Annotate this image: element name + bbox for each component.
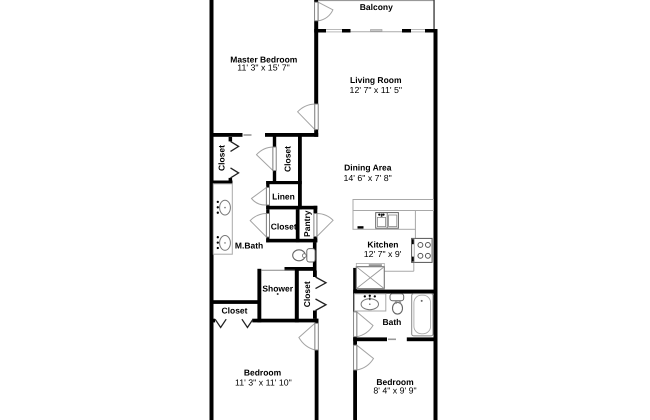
svg-text:12' 7" x 9': 12' 7" x 9' bbox=[364, 249, 402, 259]
svg-text:Closet: Closet bbox=[302, 281, 312, 307]
svg-text:Living Room: Living Room bbox=[350, 75, 402, 85]
svg-text:Closet: Closet bbox=[271, 222, 297, 232]
svg-text:12' 7" x 11' 5": 12' 7" x 11' 5" bbox=[350, 85, 402, 95]
svg-text:Shower: Shower bbox=[262, 283, 293, 293]
svg-text:M.Bath: M.Bath bbox=[235, 241, 263, 251]
svg-text:Bedroom: Bedroom bbox=[244, 368, 282, 378]
svg-text:Kitchen: Kitchen bbox=[367, 240, 398, 250]
svg-text:Balcony: Balcony bbox=[360, 2, 393, 12]
svg-text:8' 4" x 9' 9": 8' 4" x 9' 9" bbox=[373, 386, 416, 396]
svg-text:11' 3" x 15' 7": 11' 3" x 15' 7" bbox=[237, 63, 289, 73]
svg-text:Linen: Linen bbox=[272, 192, 295, 202]
svg-text:Dining Area: Dining Area bbox=[344, 163, 392, 173]
svg-text:Bath: Bath bbox=[382, 317, 401, 327]
svg-text:Pantry: Pantry bbox=[302, 210, 312, 237]
svg-text:14' 6" x 7' 8": 14' 6" x 7' 8" bbox=[343, 173, 391, 183]
svg-text:Closet: Closet bbox=[222, 306, 248, 316]
svg-text:11' 3" x 11' 10": 11' 3" x 11' 10" bbox=[235, 378, 292, 388]
svg-text:Closet: Closet bbox=[217, 145, 227, 171]
svg-text:Closet: Closet bbox=[283, 146, 293, 172]
